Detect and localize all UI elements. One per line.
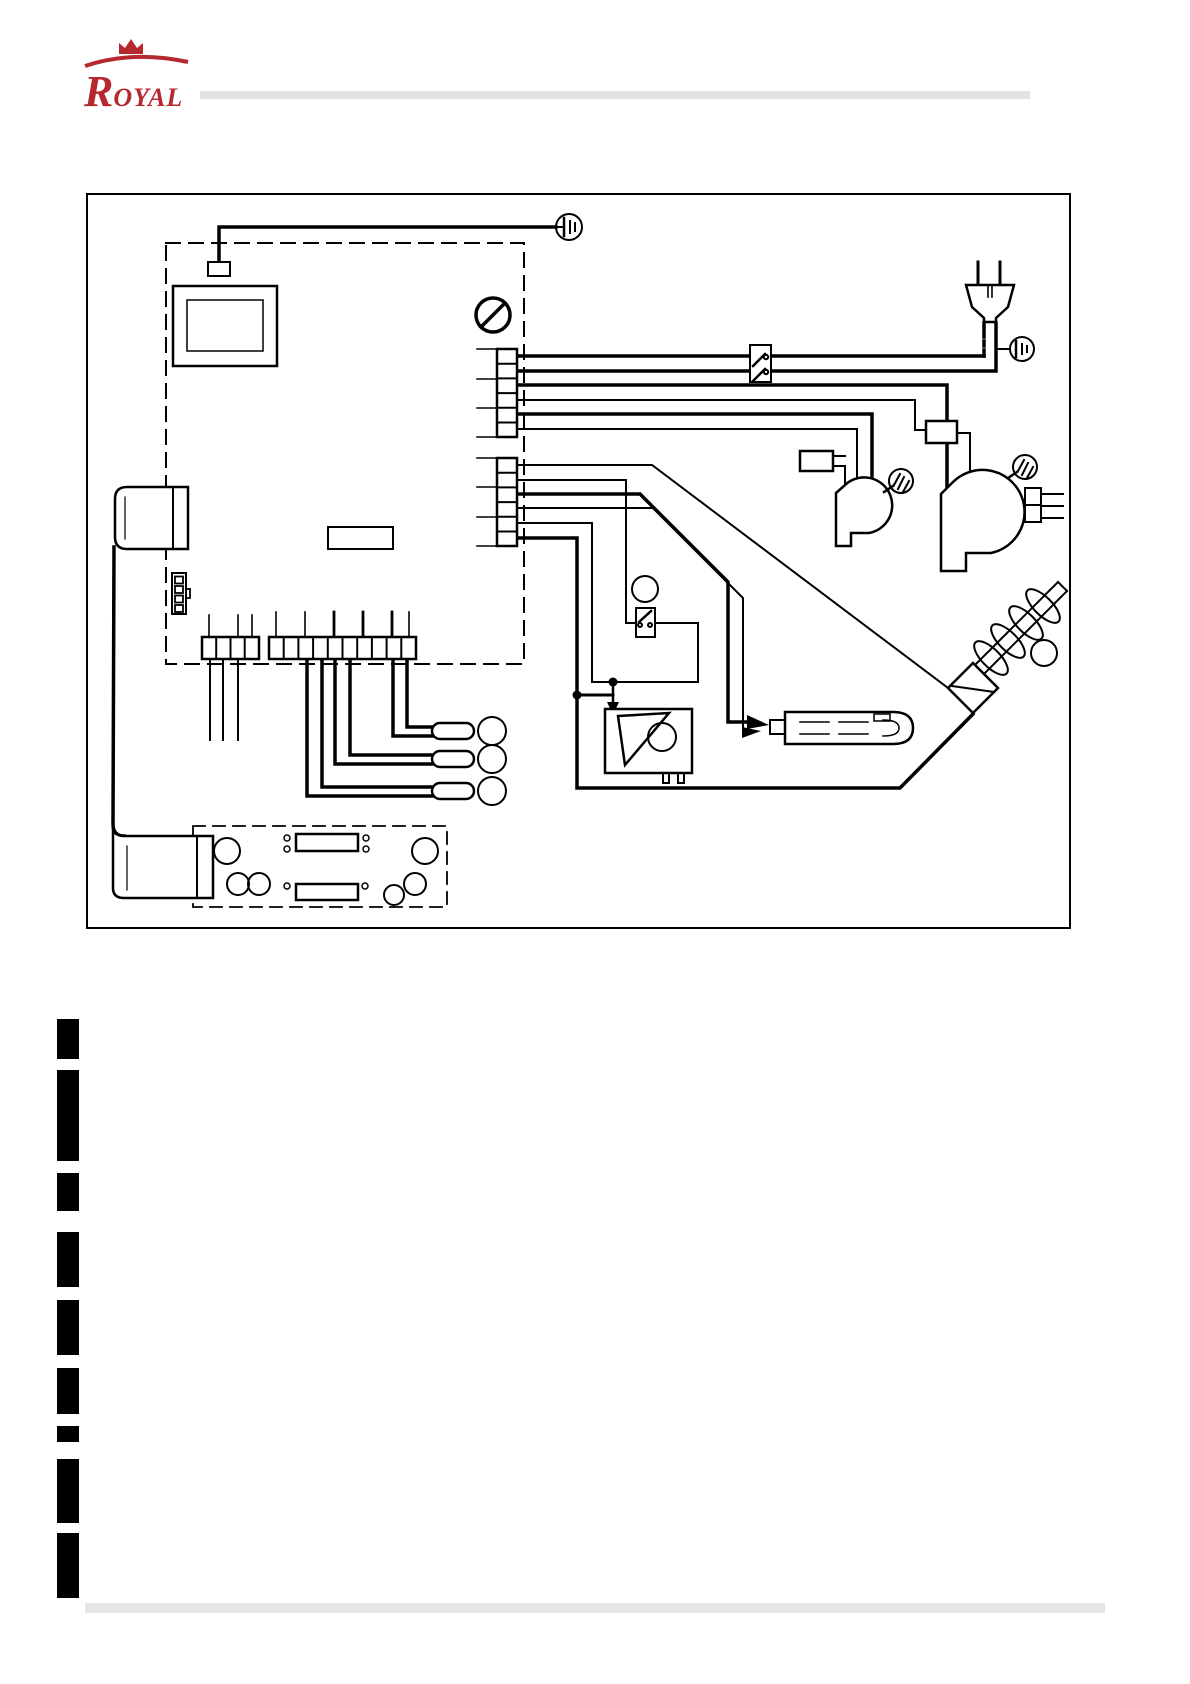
exhaust-blower-motor	[836, 469, 913, 546]
terminal-block-right	[269, 637, 416, 659]
reference-bubble	[478, 777, 506, 805]
ribbon-cable	[113, 547, 124, 836]
reference-bubble	[478, 745, 506, 773]
screw-fastener-icon	[889, 469, 913, 493]
terminal-block-left	[202, 637, 259, 659]
display-unit	[173, 262, 277, 366]
auger-gear-motor	[605, 709, 692, 783]
auger-screw	[948, 582, 1067, 713]
mains-plug-icon	[966, 262, 1014, 322]
redacted-text-bar	[57, 1459, 79, 1523]
redacted-text-bar	[57, 1070, 79, 1161]
igniter-element	[770, 712, 913, 744]
redacted-text-bar	[57, 1300, 79, 1355]
reference-bubble	[478, 717, 506, 745]
reference-bubble	[632, 576, 658, 602]
pin-header-connector	[172, 573, 190, 614]
junction-dot	[609, 678, 618, 687]
earth-ground-icon	[556, 214, 582, 240]
reference-bubble	[1031, 640, 1057, 666]
seven-segment-display	[296, 834, 358, 851]
room-blower-motor	[941, 455, 1063, 571]
redacted-text-bar	[57, 1368, 79, 1414]
junction-dot	[573, 691, 582, 700]
ribbon-cable-connector	[115, 487, 188, 549]
prohibition-icon	[476, 298, 510, 332]
screw-fastener-icon	[1013, 455, 1037, 479]
capacitor	[926, 421, 957, 443]
push-button	[227, 873, 249, 895]
push-button	[412, 838, 438, 864]
terminal-strip-upper	[497, 349, 517, 437]
redacted-text-bar	[57, 1019, 79, 1059]
redacted-text-bar	[57, 1232, 79, 1287]
earth-ground-icon	[1010, 337, 1034, 361]
fuse-switch	[750, 345, 771, 382]
terminal-strip-lower	[497, 458, 517, 546]
push-button	[404, 873, 426, 895]
push-button	[248, 873, 270, 895]
sensor-lug	[432, 723, 474, 799]
redacted-text-bar	[57, 1426, 79, 1442]
wiring-diagram	[0, 0, 1190, 1684]
redacted-text-bar	[57, 1173, 79, 1211]
seven-segment-display	[296, 884, 358, 900]
redacted-text-bar	[57, 1533, 79, 1598]
ribbon-cable-connector	[113, 826, 213, 898]
push-button	[214, 838, 240, 864]
manual-page: { "logo": { "initial": "R", "rest": "OYA…	[0, 0, 1190, 1684]
auger-spiral	[969, 584, 1065, 680]
display-board	[214, 834, 438, 905]
arrow-icon	[742, 727, 761, 738]
push-button	[384, 885, 404, 905]
pressure-switch	[636, 608, 655, 637]
capacitor	[800, 451, 833, 471]
jumper-block	[328, 527, 393, 549]
arrow-icon	[747, 715, 769, 729]
